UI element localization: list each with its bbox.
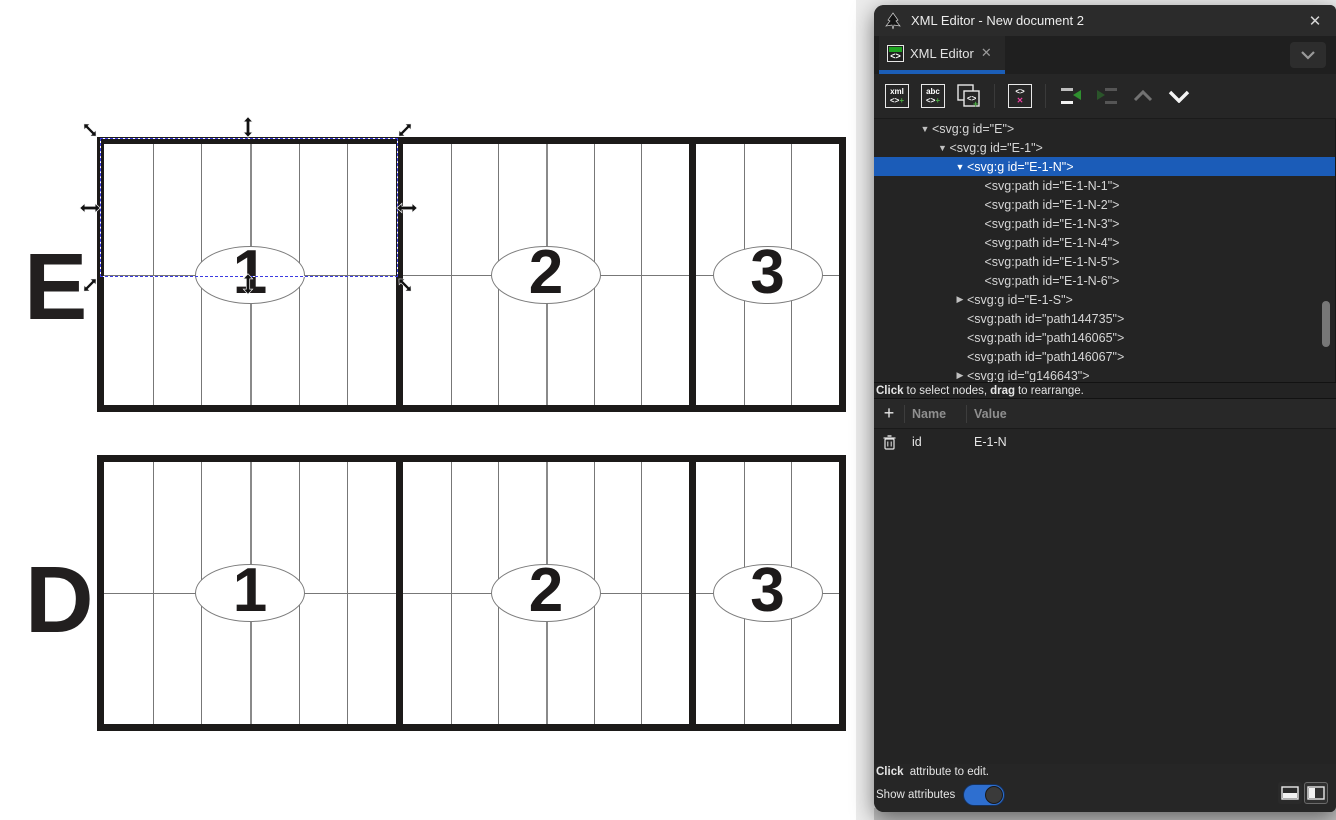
tree-node-label: <svg:g id="E-1"> — [950, 141, 1043, 155]
tree-row[interactable]: ▼<svg:g id="E"> — [874, 119, 1336, 138]
toolbar-separator — [994, 84, 995, 108]
board-D-section-3[interactable]: 3 — [696, 462, 839, 724]
tree-node-label: <svg:path id="E-1-N-2"> — [985, 198, 1120, 212]
tree-node-label: <svg:g id="g146643"> — [967, 369, 1090, 383]
xml-node-tree[interactable]: ▼<svg:g id="E">▼<svg:g id="E-1">▼<svg:g … — [874, 119, 1336, 382]
attributes-header-row: + Name Value — [874, 399, 1336, 429]
dialog-tabbar: <> XML Editor ✕ — [874, 36, 1336, 74]
scale-handle-nw-icon[interactable] — [77, 117, 103, 143]
new-element-node-button[interactable]: xml <>+ — [882, 81, 912, 111]
section-divider — [689, 144, 696, 405]
vertical-split-icon — [1307, 786, 1325, 800]
board-D[interactable]: 123 — [97, 455, 846, 731]
tree-node-label: <svg:path id="path146067"> — [967, 350, 1124, 364]
board-E-section-3[interactable]: 3 — [696, 144, 839, 405]
layout-vertical-button[interactable] — [1304, 782, 1328, 804]
dialog-footer: Click attribute to edit. Show attributes — [874, 764, 1336, 812]
triangle-expanded-icon[interactable]: ▼ — [918, 124, 932, 134]
tree-row[interactable]: <svg:path id="E-1-N-1"> — [874, 176, 1336, 195]
attribute-row[interactable]: idE-1-N — [874, 429, 1336, 455]
layout-horizontal-button[interactable] — [1278, 782, 1302, 804]
section-number-ellipse[interactable]: 1 — [195, 564, 305, 622]
scale-handle-e-icon[interactable] — [394, 195, 420, 221]
attr-name-header: Name — [905, 407, 966, 421]
tree-row[interactable]: <svg:path id="E-1-N-4"> — [874, 233, 1336, 252]
section-number: 3 — [750, 242, 784, 304]
board-D-section-1[interactable]: 1 — [104, 462, 396, 724]
horizontal-split-icon — [1281, 786, 1299, 800]
triangle-expanded-icon[interactable]: ▼ — [936, 143, 950, 153]
tab-close-icon[interactable]: ✕ — [981, 45, 992, 61]
tree-row[interactable]: <svg:path id="path144735"> — [874, 309, 1336, 328]
tree-node-label: <svg:path id="E-1-N-1"> — [985, 179, 1120, 193]
inkscape-logo-icon — [884, 12, 902, 30]
close-icon[interactable]: ✕ — [1304, 12, 1326, 30]
svg-text:+: + — [973, 99, 978, 109]
board-label-D: D — [25, 553, 92, 648]
tab-label: XML Editor — [910, 46, 974, 61]
inkscape-screen: E D 123 123 XML Editor - New document 2 … — [0, 0, 1336, 820]
tab-xml-editor[interactable]: <> XML Editor ✕ — [879, 36, 1005, 74]
attribute-name[interactable]: id — [904, 435, 966, 449]
move-node-down-button[interactable] — [1164, 81, 1194, 111]
tree-node-label: <svg:path id="E-1-N-5"> — [985, 255, 1120, 269]
board-E[interactable]: 123 — [97, 137, 846, 412]
section-divider — [396, 462, 403, 724]
indent-node-button[interactable] — [1092, 81, 1122, 111]
tree-row[interactable]: <svg:path id="path146067"> — [874, 347, 1336, 366]
attr-value-header: Value — [967, 407, 1007, 421]
board-E-section-2[interactable]: 2 — [403, 144, 689, 405]
chevron-down-icon — [1168, 90, 1190, 103]
tree-node-label: <svg:g id="E-1-S"> — [967, 293, 1073, 307]
toolbar-separator — [1045, 84, 1046, 108]
tree-row[interactable]: ▶<svg:g id="E-1-S"> — [874, 290, 1336, 309]
tab-list-button[interactable] — [1290, 42, 1326, 68]
section-number-ellipse[interactable]: 3 — [713, 246, 823, 304]
scale-handle-w-icon[interactable] — [77, 195, 103, 221]
tree-node-label: <svg:g id="E-1-N"> — [967, 160, 1074, 174]
tree-node-label: <svg:g id="E"> — [932, 122, 1014, 136]
duplicate-plus-icon: <> + — [956, 83, 982, 109]
tree-row[interactable]: <svg:path id="path146065"> — [874, 328, 1336, 347]
scale-handle-ne-icon[interactable] — [392, 117, 418, 143]
board-D-section-2[interactable]: 2 — [403, 462, 689, 724]
section-number: 2 — [529, 560, 563, 622]
tree-row[interactable]: ▼<svg:g id="E-1-N"> — [874, 157, 1336, 176]
xml-plus-icon: xml <>+ — [885, 84, 909, 108]
triangle-collapsed-icon[interactable]: ▶ — [953, 294, 967, 305]
toggle-knob — [985, 786, 1003, 804]
show-attributes-label: Show attributes — [876, 789, 955, 801]
xml-editor-dialog: XML Editor - New document 2 ✕ <> XML Edi… — [874, 5, 1336, 812]
delete-node-button[interactable]: <> ✕ — [1005, 81, 1035, 111]
tree-node-label: <svg:path id="E-1-N-3"> — [985, 217, 1120, 231]
abc-plus-icon: abc <>+ — [921, 84, 945, 108]
show-attributes-toggle[interactable] — [963, 784, 1005, 806]
tree-row[interactable]: <svg:path id="E-1-N-3"> — [874, 214, 1336, 233]
unindent-node-button[interactable] — [1056, 81, 1086, 111]
tree-row[interactable]: ▼<svg:g id="E-1"> — [874, 138, 1336, 157]
move-node-up-button[interactable] — [1128, 81, 1158, 111]
scale-handle-se-icon[interactable] — [392, 272, 418, 298]
tree-row[interactable]: <svg:path id="E-1-N-2"> — [874, 195, 1336, 214]
indent-icon — [1095, 86, 1119, 106]
tree-row[interactable]: ▶<svg:g id="g146643"> — [874, 366, 1336, 382]
section-number-ellipse[interactable]: 2 — [491, 564, 601, 622]
tag-x-icon: <> ✕ — [1008, 84, 1032, 108]
tree-node-label: <svg:path id="E-1-N-6"> — [985, 274, 1120, 288]
section-divider — [689, 462, 696, 724]
triangle-collapsed-icon[interactable]: ▶ — [953, 370, 967, 381]
dialog-title: XML Editor - New document 2 — [911, 13, 1304, 28]
tree-node-label: <svg:path id="path144735"> — [967, 312, 1124, 326]
attributes-table[interactable]: idE-1-N — [874, 429, 1336, 764]
scale-handle-s-icon[interactable] — [235, 271, 261, 297]
unindent-icon — [1059, 86, 1083, 106]
scale-handle-sw-icon[interactable] — [77, 272, 103, 298]
section-number: 2 — [529, 242, 563, 304]
delete-attribute-button[interactable] — [874, 435, 904, 450]
xml-tag-icon: <> — [887, 45, 904, 62]
section-number: 3 — [750, 560, 784, 622]
dialog-titlebar[interactable]: XML Editor - New document 2 ✕ — [874, 5, 1336, 36]
tree-row[interactable]: <svg:path id="E-1-N-5"> — [874, 252, 1336, 271]
trash-icon — [883, 435, 896, 450]
tree-row[interactable]: <svg:path id="E-1-N-6"> — [874, 271, 1336, 290]
chevron-up-icon — [1133, 90, 1153, 102]
attribute-value[interactable]: E-1-N — [966, 435, 1007, 449]
section-number-ellipse[interactable]: 2 — [491, 246, 601, 304]
chevron-down-icon — [1301, 51, 1315, 60]
new-text-node-button[interactable]: abc <>+ — [918, 81, 948, 111]
tree-scrollbar-thumb[interactable] — [1322, 301, 1330, 347]
section-number: 1 — [233, 560, 267, 622]
section-number-ellipse[interactable]: 3 — [713, 564, 823, 622]
tree-node-label: <svg:path id="E-1-N-4"> — [985, 236, 1120, 250]
scale-handle-n-icon[interactable] — [235, 114, 261, 140]
tree-hint-bar: Click to select nodes, drag to rearrange… — [874, 382, 1336, 399]
add-attribute-button[interactable]: + — [874, 403, 904, 424]
xml-toolbar: xml <>+ abc <>+ <> + — [874, 74, 1336, 119]
tree-node-label: <svg:path id="path146065"> — [967, 331, 1124, 345]
triangle-expanded-icon[interactable]: ▼ — [953, 162, 967, 172]
attribute-hint-text: Click attribute to edit. — [876, 766, 1336, 778]
duplicate-node-button[interactable]: <> + — [954, 81, 984, 111]
